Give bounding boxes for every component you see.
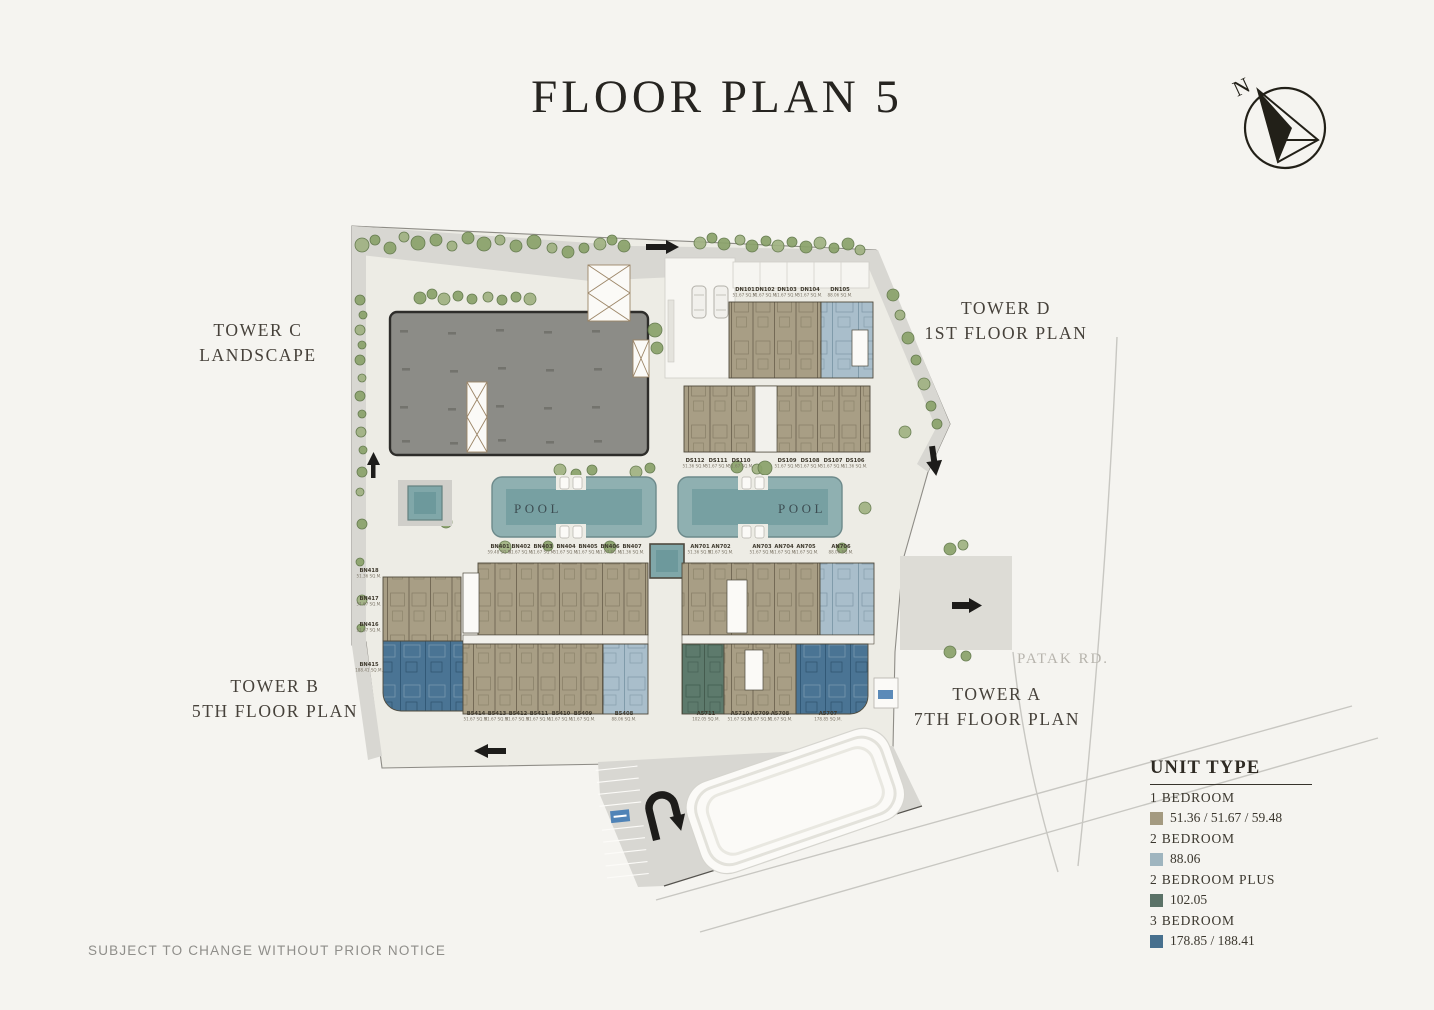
svg-text:51.36 SQ.M.: 51.36 SQ.M. [357, 573, 382, 578]
tower-b-label: TOWER B5TH FLOOR PLAN [158, 674, 392, 725]
legend-item-value: 102.05 [1150, 892, 1350, 908]
tower-a-label: TOWER A7TH FLOOR PLAN [884, 682, 1110, 733]
svg-text:51.67 SQ.M.: 51.67 SQ.M. [798, 463, 823, 468]
tower-c-label: TOWER CLANDSCAPE [146, 318, 370, 369]
svg-text:POOL: POOL [778, 501, 826, 516]
svg-text:88.06 SQ.M.: 88.06 SQ.M. [829, 549, 854, 554]
pool-2: POOL [678, 475, 842, 539]
svg-text:51.67 SQ.M.: 51.67 SQ.M. [729, 463, 754, 468]
disclaimer-text: SUBJECT TO CHANGE WITHOUT PRIOR NOTICE [88, 943, 446, 958]
legend-item-label: 2 BEDROOM PLUS [1150, 872, 1350, 888]
svg-text:51.67 SQ.M.: 51.67 SQ.M. [798, 292, 823, 297]
legend-swatch-2br [1150, 853, 1163, 866]
svg-text:51.67 SQ.M.: 51.67 SQ.M. [571, 716, 596, 721]
compass-rose: N [1228, 68, 1338, 178]
svg-text:51.36 SQ.M.: 51.36 SQ.M. [620, 549, 645, 554]
svg-text:102.05 SQ.M.: 102.05 SQ.M. [692, 716, 720, 721]
svg-text:51.67 SQ.M.: 51.67 SQ.M. [357, 627, 382, 632]
legend-item-label: 1 BEDROOM [1150, 790, 1350, 806]
unit-labels-tower-a-south: A5711102.05 SQ.M.A571051.67 SQ.M.A570951… [692, 711, 842, 721]
legend-item-value: 88.06 [1150, 851, 1350, 867]
legend-item-label: 2 BEDROOM [1150, 831, 1350, 847]
svg-text:51.36 SQ.M.: 51.36 SQ.M. [843, 463, 868, 468]
tower-d-label: TOWER D1ST FLOOR PLAN [898, 296, 1114, 347]
svg-text:51.36 SQ.M.: 51.36 SQ.M. [683, 463, 708, 468]
north-label: N [1229, 72, 1254, 101]
svg-text:POOL: POOL [514, 501, 562, 516]
legend-item-value: 178.85 / 188.41 [1150, 933, 1350, 949]
pool-1: POOL [492, 475, 656, 539]
svg-text:51.67 SQ.M.: 51.67 SQ.M. [794, 549, 819, 554]
svg-text:51.67 SQ.M.: 51.67 SQ.M. [709, 549, 734, 554]
unit-labels-tower-d-north: DN10151.67 SQ.M.DN10251.67 SQ.M.DN10351.… [733, 287, 853, 297]
svg-text:51.67 SQ.M.: 51.67 SQ.M. [357, 601, 382, 606]
svg-text:178.85 SQ.M.: 178.85 SQ.M. [814, 716, 842, 721]
legend-item-label: 3 BEDROOM [1150, 913, 1350, 929]
svg-text:188.41 SQ.M.: 188.41 SQ.M. [355, 667, 383, 672]
svg-text:51.67 SQ.M.: 51.67 SQ.M. [706, 463, 731, 468]
svg-text:51.67 SQ.M.: 51.67 SQ.M. [531, 549, 556, 554]
unit-type-legend: UNIT TYPE 1 BEDROOM 51.36 / 51.67 / 59.4… [1150, 758, 1350, 949]
road-label-patak: PATAK RD. [1017, 651, 1109, 667]
legend-title: UNIT TYPE [1150, 758, 1312, 785]
legend-item-value: 51.36 / 51.67 / 59.48 [1150, 810, 1350, 826]
legend-swatch-3br [1150, 935, 1163, 948]
svg-text:88.06 SQ.M.: 88.06 SQ.M. [612, 716, 637, 721]
tower-a-block [682, 563, 898, 714]
floor-plan-page: PATAK RD. TAINA RD. [0, 0, 1434, 1010]
legend-swatch-1br [1150, 812, 1163, 825]
svg-text:51.67 SQ.M.: 51.67 SQ.M. [768, 716, 793, 721]
svg-text:88.06 SQ.M.: 88.06 SQ.M. [828, 292, 853, 297]
page-title: FLOOR PLAN 5 [0, 70, 1434, 124]
svg-text:51.67 SQ.M.: 51.67 SQ.M. [775, 292, 800, 297]
svg-text:51.67 SQ.M.: 51.67 SQ.M. [775, 463, 800, 468]
tower-b-block [383, 563, 648, 714]
legend-swatch-2br-plus [1150, 894, 1163, 907]
